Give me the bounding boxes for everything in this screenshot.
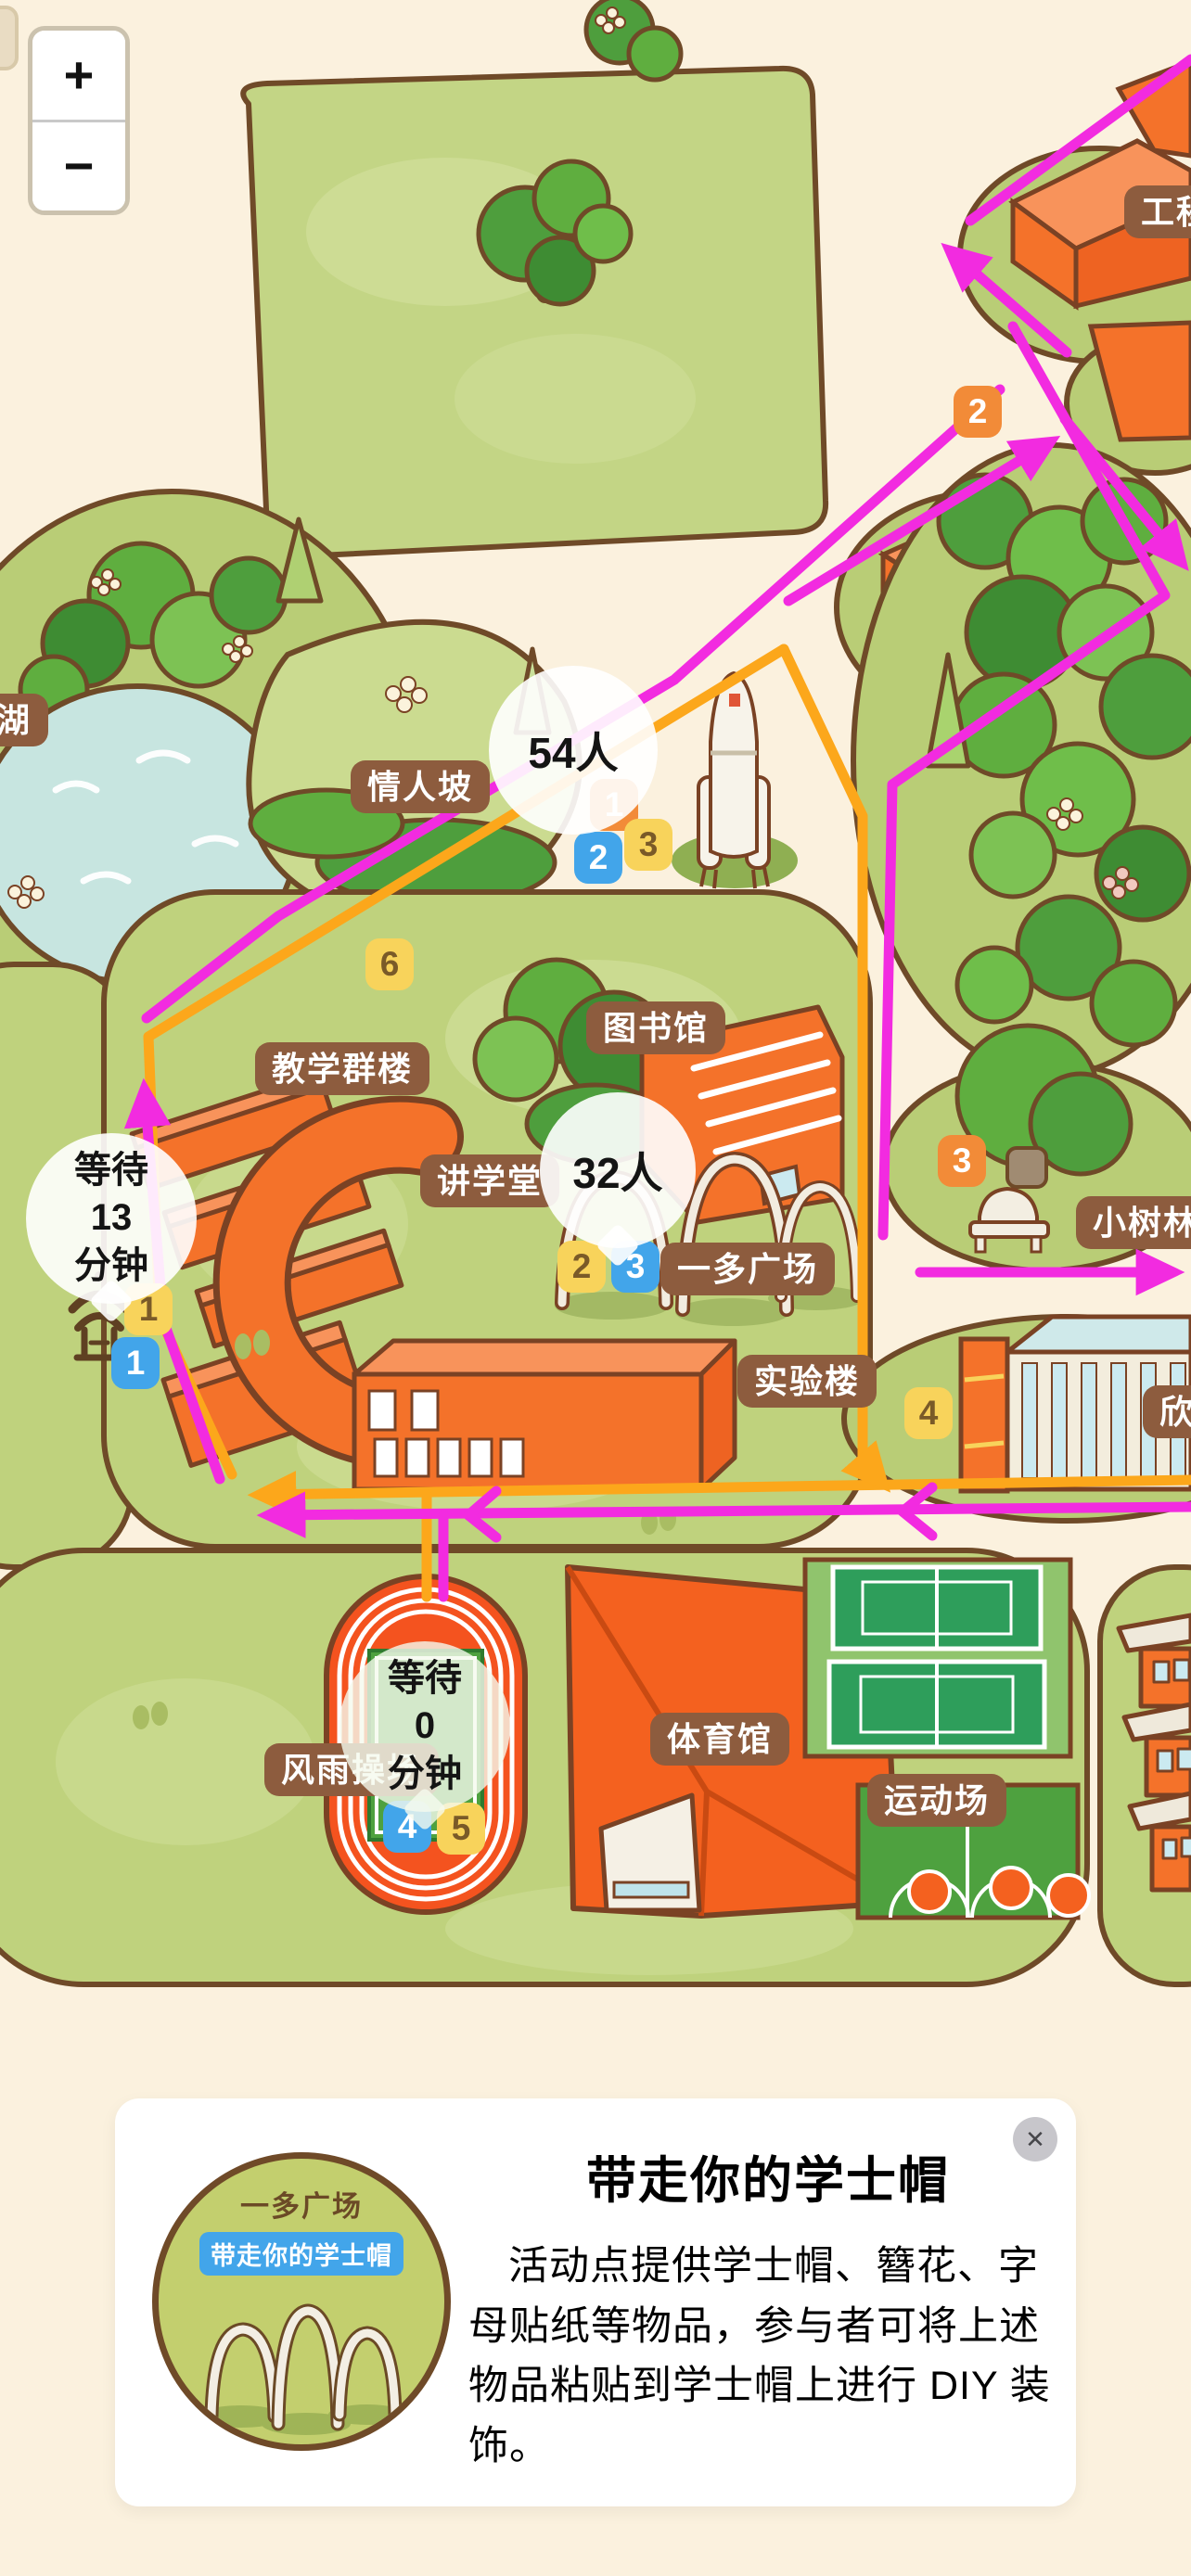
route-stop-marker[interactable]: 6 xyxy=(365,938,414,990)
wait-time-bubble[interactable]: 等待 13 分钟 xyxy=(26,1133,197,1304)
grove-label: 小树林 xyxy=(1076,1196,1191,1249)
wait-label: 等待 xyxy=(74,1147,148,1194)
gymnasium-label: 体育馆 xyxy=(650,1713,789,1766)
zoom-out-button[interactable]: − xyxy=(32,122,125,211)
app-screen: { "zoom_controls": { "zoom_in": "+", "zo… xyxy=(0,0,1191,2576)
xin-building-label: 欣 xyxy=(1143,1385,1191,1438)
map-canvas[interactable] xyxy=(0,0,1191,1994)
wait-minutes-value: 13 xyxy=(91,1194,133,1242)
crowd-count-value: 32人 xyxy=(572,1140,662,1201)
activity-card: ✕ 一多广场 带走你的学士帽 带走你的学士帽 活动点提供学士帽、簪花、字母贴纸等… xyxy=(115,2098,1076,2506)
engineering-label: 工程 xyxy=(1124,185,1191,238)
route-stop-marker[interactable]: 4 xyxy=(904,1387,953,1439)
lovers-slope-label: 情人坡 xyxy=(351,760,490,813)
route-stop-marker[interactable]: 2 xyxy=(574,832,622,884)
wait-unit: 分钟 xyxy=(388,1751,462,1798)
wait-time-bubble[interactable]: 等待 0 分钟 xyxy=(339,1641,510,1812)
lecture-hall-label: 讲学堂 xyxy=(420,1154,559,1207)
route-stop-marker[interactable]: 3 xyxy=(938,1135,986,1187)
activity-thumbnail: 一多广场 带走你的学士帽 xyxy=(152,2152,451,2451)
crowd-count-bubble[interactable]: 54人 xyxy=(489,666,658,835)
route-stop-marker[interactable]: 3 xyxy=(624,819,672,871)
activity-title: 带走你的学士帽 xyxy=(468,2139,1068,2213)
sports-zone xyxy=(0,1550,1191,1984)
edge-clipped-label xyxy=(0,7,17,69)
activity-text-block: 带走你的学士帽 活动点提供学士帽、簪花、字母贴纸等物品，参与者可将上述物品粘贴到… xyxy=(468,2139,1068,2476)
sports-field-label: 运动场 xyxy=(867,1774,1006,1827)
crowd-count-bubble[interactable]: 32人 xyxy=(540,1092,696,1248)
route-stop-marker[interactable]: 1 xyxy=(111,1337,160,1389)
lake-label: 工湖 xyxy=(0,694,48,746)
thumbnail-arches-illustration xyxy=(186,2277,417,2435)
yiduo-plaza-label: 一多广场 xyxy=(660,1243,835,1295)
north-lawn xyxy=(243,0,826,556)
teaching-complex-label: 教学群楼 xyxy=(255,1042,429,1095)
thumbnail-activity-badge: 带走你的学士帽 xyxy=(199,2232,403,2276)
laboratory-label: 实验楼 xyxy=(737,1355,877,1408)
thumbnail-place-name: 一多广场 xyxy=(159,2183,444,2225)
map-zoom-control: + − xyxy=(28,26,130,215)
wait-minutes-value: 0 xyxy=(415,1702,435,1750)
crowd-count-value: 54人 xyxy=(528,720,618,781)
route-stop-marker[interactable]: 2 xyxy=(954,386,1002,438)
activity-description: 活动点提供学士帽、簪花、字母贴纸等物品，参与者可将上述物品粘贴到学士帽上进行 D… xyxy=(468,2237,1068,2476)
wait-unit: 分钟 xyxy=(74,1243,148,1290)
campus-map[interactable]: 工程 情人坡 工湖 教学群楼 图书馆 讲学堂 一多广场 实验楼 欣 小树林 体育… xyxy=(0,0,1191,1994)
library-label: 图书馆 xyxy=(586,1001,725,1054)
zoom-in-button[interactable]: + xyxy=(32,31,125,120)
wait-label: 等待 xyxy=(388,1655,462,1702)
